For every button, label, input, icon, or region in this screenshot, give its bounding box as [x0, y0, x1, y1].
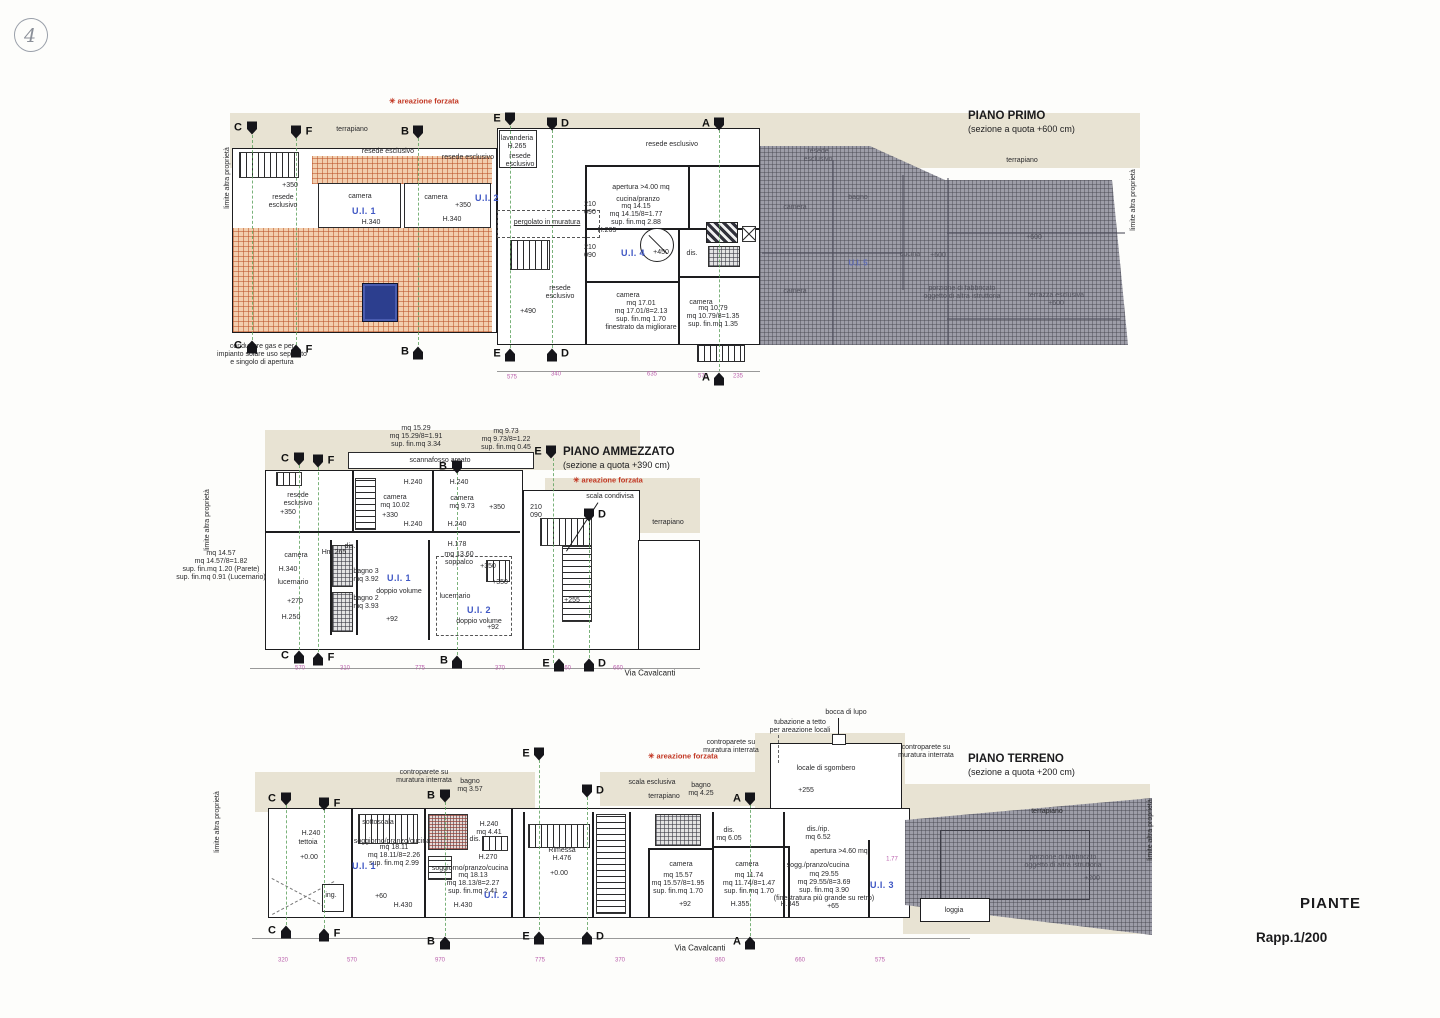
dimension-value: 235 [733, 374, 743, 381]
plan-annotation: tettoia [298, 839, 317, 847]
wall [648, 848, 650, 918]
plan-annotation: pergolato in muratura [514, 219, 581, 227]
stair-rimessa [528, 824, 590, 848]
plan-annotation: H.178 [448, 541, 467, 549]
section-marker-icon [547, 349, 557, 362]
section-line [589, 520, 590, 663]
plan-annotation: camera [735, 861, 758, 869]
plan-annotation: scala condivisa [586, 493, 633, 501]
plan-annotation: camera [669, 861, 692, 869]
dimension-value: 775 [415, 666, 425, 673]
plan-annotation: +350 [489, 504, 505, 512]
building-right-ext [638, 540, 700, 650]
unit-label: U.I. 1 [352, 861, 376, 871]
plan-annotation: resede esclusivo [506, 153, 535, 169]
plan-annotation: +255 [798, 787, 814, 795]
plan-annotation: resede esclusivo [442, 154, 494, 162]
dimension-value: 320 [278, 958, 288, 965]
section-marker-icon [319, 929, 329, 942]
plan-annotation: +65 [827, 903, 839, 911]
plan-annotation: mq 14.15 mq 14.15/8=1.77 sup. fin.mq 2.8… [610, 203, 663, 227]
plan-annotation: mq 15.57 mq 15.57/8=1.95 sup. fin.mq 1.7… [652, 872, 705, 896]
other-property-label: terrazza esclusiva +600 [1028, 292, 1084, 308]
plan-annotation: +330 [382, 512, 398, 520]
plan-annotation: +350 [280, 509, 296, 517]
wall [428, 540, 430, 640]
section-line [553, 458, 554, 663]
plan-annotation: bocca di lupo [825, 709, 866, 717]
bathroom-fixtures [708, 246, 740, 267]
plan-title: PIANO AMMEZZATO [563, 446, 675, 458]
plan-annotation: H.240 [404, 521, 423, 529]
section-line [552, 130, 553, 348]
plan-subtitle: (sezione a quota +390 cm) [563, 460, 670, 470]
section-line [750, 805, 751, 936]
dimension-value: 575 [507, 375, 517, 382]
plan-annotation: +0.00 [550, 870, 568, 878]
section-letter: A [702, 118, 710, 131]
section-letter: D [598, 509, 606, 522]
other-property-label: bagno [848, 194, 867, 202]
plan-annotation: +350 [455, 202, 471, 210]
section-letter: D [598, 658, 606, 671]
plan-annotation: terrapiano [1031, 808, 1063, 816]
plan-annotation: controparete su muratura interrata [898, 744, 954, 760]
plan-annotation: terrapiano [648, 793, 680, 801]
other-property-label: porzione di fabbricato oggetto di altra … [923, 285, 1000, 301]
other-property-label: +200 [1084, 875, 1100, 883]
plan-annotation: +92 [487, 624, 499, 632]
terrain-band [600, 772, 768, 806]
plan-annotation: resede esclusivo [269, 194, 298, 210]
section-letter: E [493, 113, 500, 126]
other-property-label: +600 [1026, 234, 1042, 242]
plan-annotation: loggia [945, 907, 964, 915]
section-line [587, 797, 588, 930]
section-line [539, 760, 540, 930]
faint-wall [902, 175, 904, 290]
plan-annotation: lucernario [440, 593, 471, 601]
section-letter: D [596, 931, 604, 944]
plan-annotation: Rimessa H.476 [548, 847, 575, 863]
dimension-value: 575 [875, 958, 885, 965]
wall [352, 470, 354, 532]
plan-annotation: +450 [653, 249, 669, 257]
leader-line [838, 718, 839, 734]
plan-annotation: H.430 [394, 902, 413, 910]
unit-label: U.I. 1 [387, 573, 411, 583]
section-letter: B [440, 655, 448, 668]
other-property-label: resede esclusivo [804, 148, 833, 164]
plan-annotation: H.345 [781, 901, 800, 909]
section-line [296, 138, 297, 345]
plan-annotation: sogg./pranzo/cucina [787, 862, 850, 870]
plan-annotation: mq 14.57 mq 14.57/8=1.82 sup. fin.mq 1.2… [176, 550, 266, 582]
boundary-label: limite altra proprietà [224, 147, 232, 208]
stair [482, 836, 508, 851]
street-line [252, 938, 970, 939]
wall [585, 281, 680, 283]
plan-subtitle: (sezione a quota +600 cm) [968, 124, 1075, 134]
wall [688, 165, 690, 230]
wall [523, 812, 525, 918]
faint-wall [762, 252, 902, 254]
plan-annotation: sottoscala [362, 819, 394, 827]
section-line [418, 138, 419, 345]
other-property-label: porzione di fabbricato oggetto di altra … [1024, 854, 1101, 870]
unit-label: U.I. 2 [467, 605, 491, 615]
stair [510, 240, 550, 270]
wall [712, 846, 790, 848]
plan-annotation: bagno mq 4.25 [688, 782, 713, 798]
faint-wall [947, 318, 1120, 320]
plan-annotation: camera [616, 292, 639, 300]
wall [432, 470, 434, 532]
section-marker-icon [452, 656, 462, 669]
section-marker-icon [505, 349, 515, 362]
section-marker-icon [554, 659, 564, 672]
dimension-value: 860 [715, 958, 725, 965]
leader-line-dashed [778, 735, 779, 763]
plan-annotation: H.250 [282, 614, 301, 622]
ventilation-note: ✳ areazione forzata [573, 477, 643, 486]
wall [680, 276, 760, 278]
plan-annotation: +350 [492, 579, 508, 587]
plan-annotation: H.340 [279, 566, 298, 574]
plan-annotation: scala esclusiva [628, 779, 675, 787]
section-letter: B [401, 126, 409, 139]
plan-annotation: mq 10.02 [380, 502, 409, 510]
unit-label: U.I. 2 [475, 193, 499, 203]
plan-annotation: 210 090 [584, 244, 596, 260]
plan-annotation: apertura >4.00 mq [612, 184, 669, 192]
section-letter: F [334, 798, 341, 811]
section-marker-icon [294, 651, 304, 664]
unit-label: U.I. 5 [848, 258, 867, 267]
section-marker-icon [582, 785, 592, 798]
plan-annotation: +0.00 [300, 854, 318, 862]
section-letter: C [281, 453, 289, 466]
wall [511, 808, 513, 918]
section-letter: A [733, 793, 741, 806]
wall [678, 230, 680, 345]
wall [648, 848, 714, 850]
dimension-value: 570 [347, 958, 357, 965]
plan-annotation: controparete su muratura interrata [703, 739, 759, 755]
plan-annotation: +350 [480, 563, 496, 571]
plan-annotation: dis./rip. mq 6.52 [805, 826, 830, 842]
plan-annotation: mq 9.73 mq 9.73/8=1.22 sup. fin.mq 0.45 [481, 428, 531, 452]
stair [239, 152, 299, 178]
sheet-title: PIANTE [1300, 895, 1361, 912]
street-label: Via Cavalcanti [675, 943, 726, 952]
unit-label: U.I. 2 [484, 890, 508, 900]
plan-annotation: tubazione a tetto per areazione locali [770, 719, 831, 735]
section-line [252, 135, 253, 345]
stair-esclusiva [596, 814, 626, 914]
wall [424, 808, 426, 918]
plan-annotation: H.340 [443, 216, 462, 224]
plan-annotation: terrapiano [1006, 157, 1038, 165]
other-property-label: +600 [930, 252, 946, 260]
plan-annotation: H.240 [302, 830, 321, 838]
plan-annotation: H.355 [731, 901, 750, 909]
plan-title: PIANO PRIMO [968, 110, 1045, 122]
section-letter: E [493, 348, 500, 361]
section-marker-icon [714, 373, 724, 386]
terrain-band [255, 772, 535, 812]
section-letter: A [733, 936, 741, 949]
section-letter: A [702, 372, 710, 385]
plan-annotation: resede esclusivo [646, 141, 698, 149]
section-letter: C [234, 340, 242, 353]
bathroom-fixtures [428, 814, 468, 850]
section-line [324, 810, 325, 928]
plan-annotation: H.340 [362, 219, 381, 227]
plan-subtitle: (sezione a quota +200 cm) [968, 767, 1075, 777]
dimension-value: 635 [647, 372, 657, 379]
plan-annotation: resede esclusivo [362, 148, 414, 156]
dimension-line [497, 371, 760, 372]
dimension-value: 775 [535, 958, 545, 965]
section-marker-icon [413, 347, 423, 360]
plan-annotation: ing. [325, 892, 336, 900]
plan-annotation: H.240 [450, 479, 469, 487]
dimension-value: 340 [551, 372, 561, 379]
boundary-label: limite altra proprietà [214, 791, 222, 852]
stair [355, 478, 376, 530]
other-property-label: camera [783, 204, 806, 212]
plan-annotation: H.265 [508, 143, 527, 151]
plan-annotation: resede esclusivo [284, 492, 313, 508]
section-line [318, 467, 319, 657]
plan-title: PIANO TERRENO [968, 753, 1064, 765]
plan-annotation: +255 [564, 597, 580, 605]
plan-annotation: lucernario [278, 579, 309, 587]
unit-label: U.I. 1 [352, 206, 376, 216]
section-marker-icon [582, 932, 592, 945]
plan-annotation: bagno mq 3.57 [457, 778, 482, 794]
plan-annotation: mq 15.29 mq 15.29/8=1.91 sup. fin.mq 3.3… [390, 425, 443, 449]
plan-annotation: Hm 265 [322, 549, 347, 557]
section-letter: C [281, 650, 289, 663]
section-marker-icon [534, 748, 544, 761]
plan-annotation: 210 090 [530, 504, 542, 520]
section-letter: C [268, 925, 276, 938]
plan-annotation: camera [383, 494, 406, 502]
dimension-value: 570 [295, 666, 305, 673]
bathroom-fixtures [655, 814, 701, 846]
wall [629, 812, 631, 918]
plan-annotation: 210 090 [584, 201, 596, 217]
boundary-label: limite altra proprietà [204, 489, 212, 550]
plan-annotation: locale di sgombero [797, 765, 856, 773]
street-label: Via Cavalcanti [625, 668, 676, 677]
boundary-label: limite altra proprietà [1130, 169, 1138, 230]
plan-annotation: H.430 [454, 902, 473, 910]
plan-annotation: mq 29.55 mq 29.55/8=3.69 sup. fin.mq 3.9… [774, 871, 874, 903]
plan-annotation: +92 [386, 616, 398, 624]
section-letter: F [306, 126, 313, 139]
plan-annotation: bagno 3 mq 3.92 [353, 568, 378, 584]
section-letter: C [268, 793, 276, 806]
section-marker-icon [313, 653, 323, 666]
plan-annotation: H.240 [448, 521, 467, 529]
wall [712, 812, 714, 918]
bocca-di-lupo [832, 734, 846, 745]
section-letter: E [534, 446, 541, 459]
plan-annotation: doppio volume [376, 588, 422, 596]
section-letter: F [334, 928, 341, 941]
plan-annotation: camera [424, 194, 447, 202]
plan-annotation: mq 13.60 soppalco [444, 551, 473, 567]
plan-annotation: terrapiano [336, 126, 368, 134]
section-letter: B [427, 936, 435, 949]
dimension-value: 370 [495, 666, 505, 673]
plan-annotation: camera [450, 495, 473, 503]
section-letter: B [427, 790, 435, 803]
ventilation-note: ✳ areazione forzata [389, 98, 459, 107]
dimension-value: 970 [435, 958, 445, 965]
bathroom-fixtures [332, 592, 353, 632]
plan-annotation: H.240 [404, 479, 423, 487]
dimension-value: 1.77 [886, 857, 898, 864]
section-letter: E [542, 658, 549, 671]
plan-annotation: terrapiano [652, 519, 684, 527]
boundary-label: limite altra proprietà [1147, 799, 1155, 860]
unit-label: U.I. 4 [621, 248, 645, 258]
wall [356, 540, 358, 635]
stair-lower [562, 546, 592, 622]
plan-annotation: +490 [520, 308, 536, 316]
other-property-hatch [760, 138, 1128, 345]
section-letter: B [439, 461, 447, 474]
shaft [742, 226, 756, 242]
plan-annotation: resede esclusivo [546, 285, 575, 301]
plan-annotation: H.265 [598, 227, 617, 235]
plan-annotation: H.270 [479, 854, 498, 862]
section-letter: F [328, 652, 335, 665]
wall [592, 812, 594, 918]
dimension-value: 310 [340, 666, 350, 673]
plan-annotation: dis. [687, 250, 698, 258]
plan-annotation: lavanderia [501, 135, 533, 143]
section-marker-icon [584, 659, 594, 672]
other-property-label: cucina [900, 251, 920, 259]
section-line [719, 130, 720, 372]
plan-annotation: +92 [679, 901, 691, 909]
section-letter: E [522, 748, 529, 761]
faint-wall [947, 178, 949, 345]
room-locale-sgombero [770, 743, 902, 809]
section-letter: D [561, 348, 569, 361]
skylight-panel [362, 283, 398, 322]
section-letter: B [401, 346, 409, 359]
plan-annotation: camera [348, 193, 371, 201]
plan-annotation: dis. [470, 836, 481, 844]
dimension-value: 660 [613, 666, 623, 673]
section-letter: D [561, 118, 569, 131]
section-letter: F [306, 344, 313, 357]
section-letter: E [522, 931, 529, 944]
plan-annotation: H.240 mq 4.41 [476, 821, 501, 837]
section-line [286, 805, 287, 925]
page-number: 4 [24, 25, 36, 47]
plan-annotation: mq 11.74 mq 11.74/8=1.47 sup. fin.mq 1.7… [723, 872, 775, 896]
balcony [697, 345, 745, 362]
plan-annotation: mq 9.73 [449, 503, 474, 511]
plan-annotation: bagno 2 mq 3.93 [353, 595, 378, 611]
plan-annotation: controparete su muratura interrata [396, 769, 452, 785]
section-marker-icon [534, 932, 544, 945]
plan-annotation: +270 [287, 598, 303, 606]
plan-annotation: +60 [375, 893, 387, 901]
plan-annotation: mq 17.01 mq 17.01/8=2.13 sup. fin.mq 1.7… [605, 300, 676, 332]
wall [585, 165, 760, 167]
other-property-label: camera [783, 288, 806, 296]
section-marker-icon [281, 926, 291, 939]
section-letter: F [328, 455, 335, 468]
unit-label: U.I. 3 [870, 880, 894, 890]
plan-annotation: apertura >4.60 mq [810, 848, 867, 856]
plan-annotation: +350 [282, 182, 298, 190]
section-letter: C [234, 122, 242, 135]
scanned-plan-sheet: 4 PIANO PRIMO (sezione a quota +600 cm) [0, 0, 1440, 1018]
wall [265, 531, 520, 533]
plan-annotation: mq 10.79 mq 10.79/8=1.35 sup. fin.mq 1.3… [687, 305, 740, 329]
sheet-scale: Rapp.1/200 [1256, 930, 1327, 945]
plan-annotation: dis. mq 6.05 [716, 827, 741, 843]
plan-annotation: camera [284, 552, 307, 560]
section-letter: D [596, 785, 604, 798]
dimension-value: 660 [795, 958, 805, 965]
dimension-value: 370 [615, 958, 625, 965]
bathroom-fixtures [706, 222, 738, 243]
